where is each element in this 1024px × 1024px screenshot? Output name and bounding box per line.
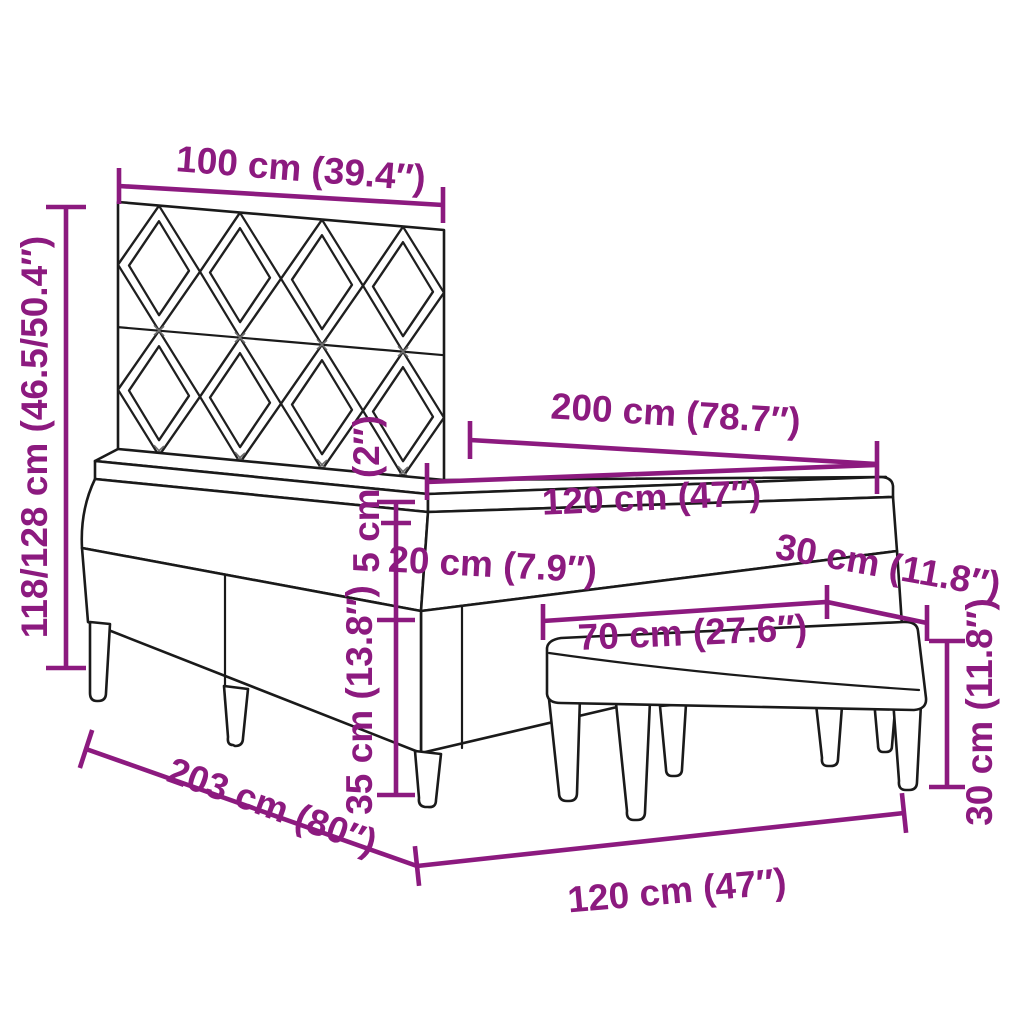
dim-label-overall-height: 118/128 cm (46.5/50.4″) <box>14 236 55 638</box>
bench-leg <box>616 701 650 820</box>
bench-leg <box>549 697 580 801</box>
dim-bench-height: 30 cm (11.8″) <box>929 598 1000 826</box>
bench-leg <box>660 704 686 776</box>
bed-leg <box>90 622 110 701</box>
dim-label-bench-height: 30 cm (11.8″) <box>959 598 1000 826</box>
diagram-canvas: 100 cm (39.4″) 118/128 cm (46.5/50.4″) 2… <box>0 0 1024 1024</box>
bed-drawing <box>82 202 903 807</box>
dim-overall-height: 118/128 cm (46.5/50.4″) <box>14 207 86 668</box>
dim-label-base-height: 35 cm (13.8″) <box>339 585 380 815</box>
bed-leg <box>224 686 248 746</box>
dimension-diagram: 100 cm (39.4″) 118/128 cm (46.5/50.4″) 2… <box>0 0 1024 1024</box>
dim-frame-width: 120 cm (47″) <box>417 793 906 920</box>
dim-label-frame-width: 120 cm (47″) <box>566 861 788 921</box>
dim-label-bed-length: 200 cm (78.7″) <box>550 385 802 441</box>
bed-leg <box>415 751 441 807</box>
dim-label-topper-thickness: 5 cm (2″) <box>346 415 387 573</box>
headboard <box>118 202 444 486</box>
